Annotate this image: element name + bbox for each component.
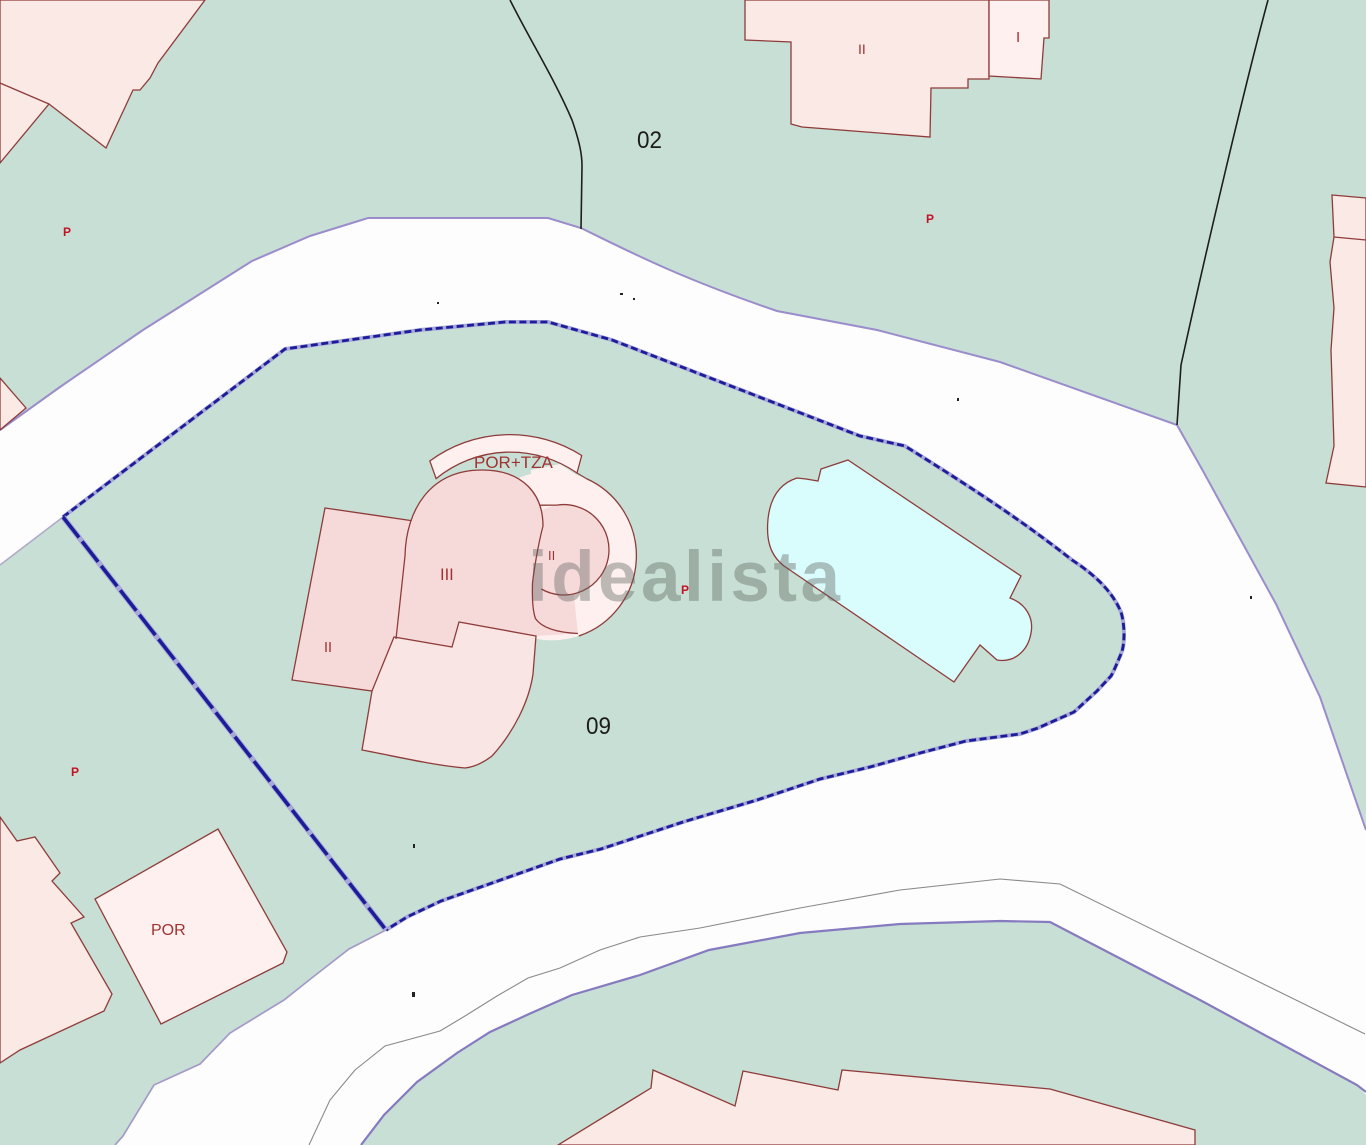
svg-text:09: 09 <box>586 713 611 740</box>
svg-text:POR+TZA: POR+TZA <box>474 453 554 472</box>
svg-text:II: II <box>858 41 866 57</box>
svg-text:II: II <box>324 640 332 656</box>
svg-text:P: P <box>71 765 79 779</box>
svg-text:I: I <box>1016 29 1020 46</box>
svg-text:P: P <box>926 212 934 226</box>
svg-text:POR: POR <box>151 922 186 939</box>
svg-text:02: 02 <box>637 127 662 154</box>
svg-text:III: III <box>440 566 454 584</box>
svg-text:P: P <box>63 225 71 239</box>
svg-text:idealista: idealista <box>528 538 841 617</box>
